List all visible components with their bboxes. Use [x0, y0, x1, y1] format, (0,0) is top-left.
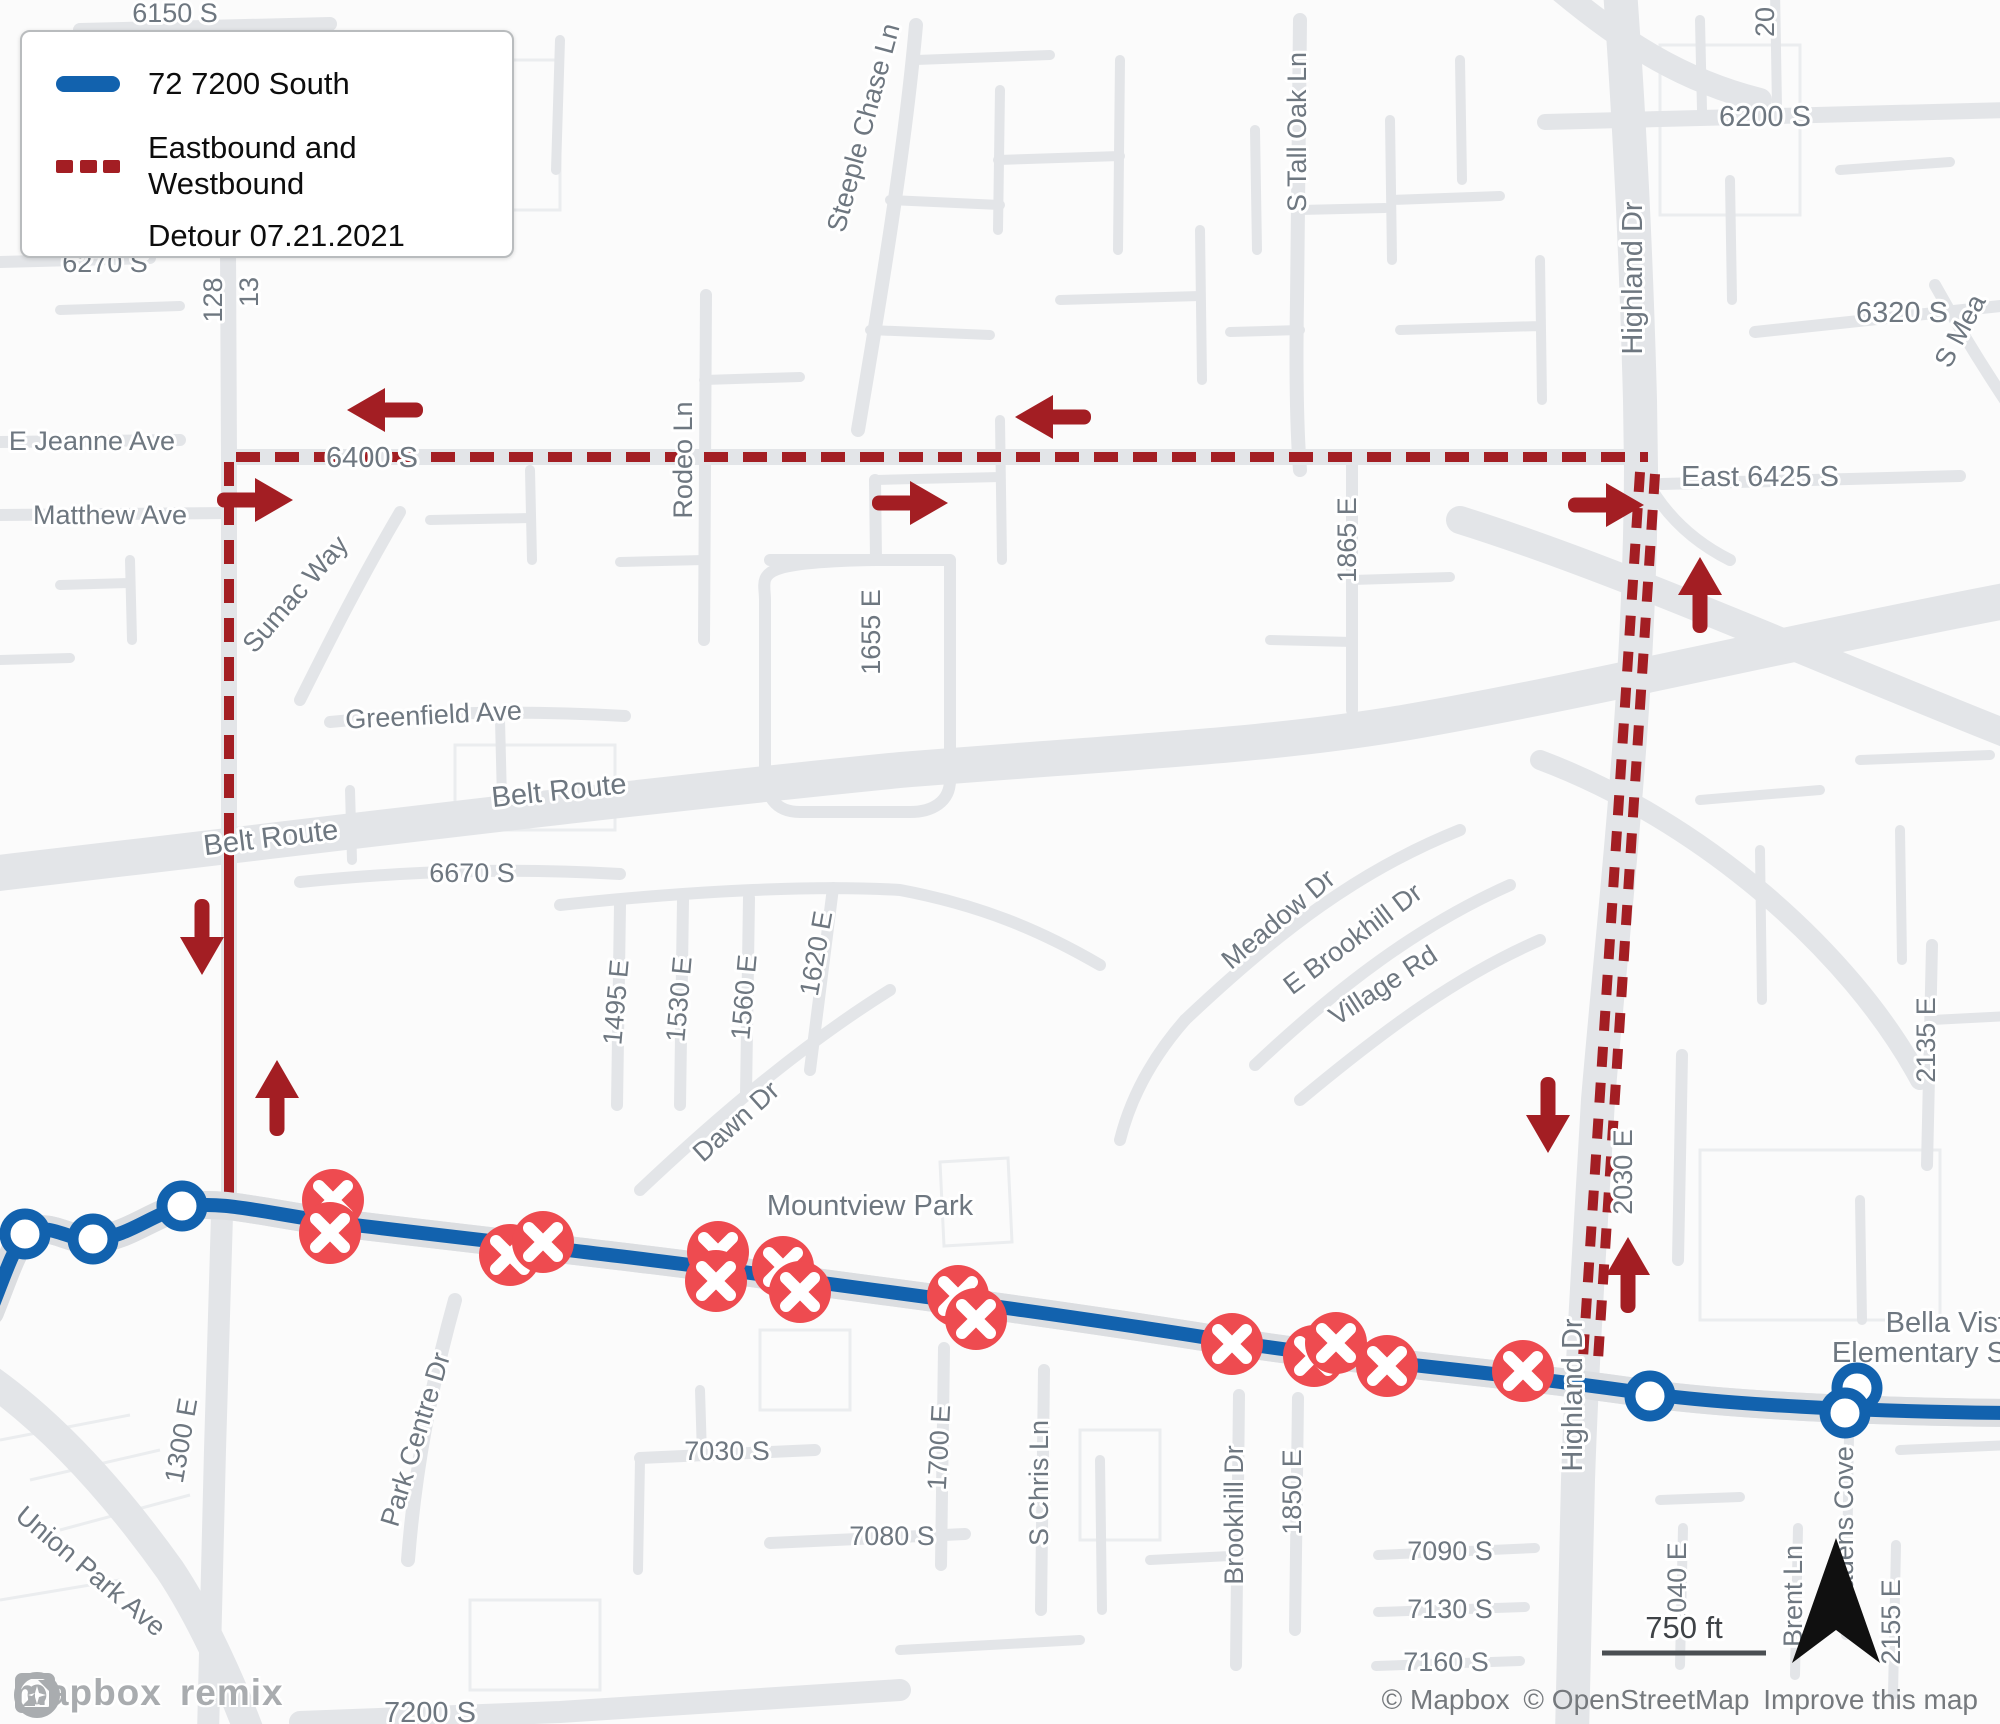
- map-svg: 6150 S 6270 S 128 13 E Jeanne Ave Matthe…: [0, 0, 2000, 1724]
- street-label-13: 13: [234, 277, 264, 307]
- street-label-1700-e: 1700 E: [922, 1404, 956, 1491]
- closed-stop-icon: [1201, 1313, 1263, 1375]
- street-label-7130-s: 7130 S: [1407, 1594, 1493, 1624]
- street-label-2155-e: 2155 E: [1876, 1579, 1906, 1665]
- route-line-swatch-icon: [56, 76, 120, 92]
- street-label-7160-s: 7160 S: [1403, 1647, 1489, 1677]
- arrow-south-icon: [1526, 1077, 1570, 1153]
- closed-stop-icon: [1492, 1340, 1554, 1402]
- legend-route-row: 72 7200 South: [56, 66, 492, 102]
- remix-logo-icon: [14, 1672, 56, 1714]
- map-canvas[interactable]: 6150 S 6270 S 128 13 E Jeanne Ave Matthe…: [0, 0, 2000, 1724]
- street-labels: 6150 S 6270 S 128 13 E Jeanne Ave Matthe…: [9, 0, 2000, 1724]
- street-label-dawn-dr: Dawn Dr: [687, 1075, 785, 1168]
- street-label-1495-e: 1495 E: [597, 958, 634, 1046]
- street-label-s-tall-oak-ln: S Tall Oak Ln: [1282, 52, 1312, 212]
- legend-detour-row: Eastbound and Westbound: [56, 130, 492, 202]
- bus-stop-icon: [162, 1186, 202, 1226]
- street-label-s-chris-ln: S Chris Ln: [1024, 1420, 1054, 1546]
- street-label-1865-e: 1865 E: [1332, 497, 1362, 583]
- closed-stop-icon: [299, 1202, 361, 1264]
- closed-stop-icon: [1356, 1335, 1418, 1397]
- arrow-north-icon: [255, 1060, 299, 1136]
- street-label-2135-e: 2135 E: [1911, 997, 1941, 1083]
- street-label-matthew-ave: Matthew Ave: [33, 500, 187, 530]
- closed-stop-icon: [512, 1211, 574, 1273]
- street-label-1560-e: 1560 E: [725, 953, 762, 1041]
- road-network: [0, 0, 2000, 1724]
- remix-logo[interactable]: remix: [180, 1672, 284, 1714]
- street-label-1620-e: 1620 E: [794, 909, 838, 998]
- street-label-7200-s: 7200 S: [384, 1697, 476, 1724]
- street-label-brookhill-dr: Brookhill Dr: [1219, 1445, 1249, 1585]
- street-label-2030-e: 2030 E: [1608, 1129, 1638, 1215]
- legend-detour-label-line1: Eastbound and Westbound: [148, 130, 492, 202]
- attribution-mapbox[interactable]: © Mapbox: [1382, 1684, 1510, 1715]
- map-attribution: © Mapbox © OpenStreetMap Improve this ma…: [1376, 1684, 1978, 1716]
- closed-stop-icon: [685, 1250, 747, 1312]
- street-label-6200-s: 6200 S: [1719, 101, 1811, 133]
- street-label-rodeo-ln: Rodeo Ln: [668, 401, 698, 518]
- street-label-7080-s: 7080 S: [849, 1521, 935, 1551]
- arrow-north-icon: [1606, 1237, 1650, 1313]
- detour-line-swatch-icon: [56, 160, 120, 173]
- bus-stop-icon: [1825, 1393, 1865, 1433]
- street-label-6670-s: 6670 S: [429, 858, 515, 888]
- street-label-1850-e: 1850 E: [1277, 1449, 1307, 1535]
- street-label-mountview-park: Mountview Park: [767, 1190, 974, 1222]
- legend: 72 7200 South Eastbound and Westbound De…: [20, 30, 514, 258]
- street-label-6150-s: 6150 S: [132, 0, 218, 28]
- legend-detour-label-line2: Detour 07.21.2021: [148, 218, 492, 254]
- street-label-6400-s: 6400 S: [326, 442, 418, 474]
- arrow-west-icon: [1015, 395, 1091, 439]
- street-label-6320-s: 6320 S: [1856, 297, 1948, 329]
- street-label-7030-s: 7030 S: [684, 1436, 770, 1466]
- legend-route-label: 72 7200 South: [148, 66, 350, 102]
- poi-label-bella-vista-line1: Bella Vist: [1886, 1307, 2000, 1339]
- bus-stop-icon: [1630, 1376, 1670, 1416]
- street-label-highland-dr-top: Highland Dr: [1617, 201, 1649, 354]
- attribution-osm[interactable]: © OpenStreetMap: [1523, 1684, 1749, 1715]
- scale-bar-label: 750 ft: [1645, 1610, 1723, 1645]
- arrow-east-icon: [872, 481, 948, 525]
- street-label-128: 128: [198, 277, 228, 322]
- closed-stop-icon: [945, 1288, 1007, 1350]
- street-label-1300-e: 1300 E: [159, 1396, 203, 1485]
- improve-map-link[interactable]: Improve this map: [1763, 1684, 1978, 1715]
- street-label-east-6425-s: East 6425 S: [1681, 461, 1839, 493]
- arrow-west-icon: [347, 388, 423, 432]
- street-label-7090-s: 7090 S: [1407, 1536, 1493, 1566]
- logo-bar: mapbox remix: [14, 1672, 284, 1714]
- arrow-south-icon: [180, 899, 224, 975]
- street-label-20: 20: [1750, 7, 1780, 37]
- closed-stop-icon: [769, 1261, 831, 1323]
- street-label-1530-e: 1530 E: [660, 955, 697, 1043]
- bus-stop-icon: [73, 1219, 113, 1259]
- street-label-highland-dr-bottom: Highland Dr: [1557, 1318, 1589, 1471]
- street-label-e-jeanne-ave: E Jeanne Ave: [9, 426, 175, 456]
- bus-stop-icon: [5, 1214, 45, 1254]
- street-label-1655-e: 1655 E: [856, 589, 886, 675]
